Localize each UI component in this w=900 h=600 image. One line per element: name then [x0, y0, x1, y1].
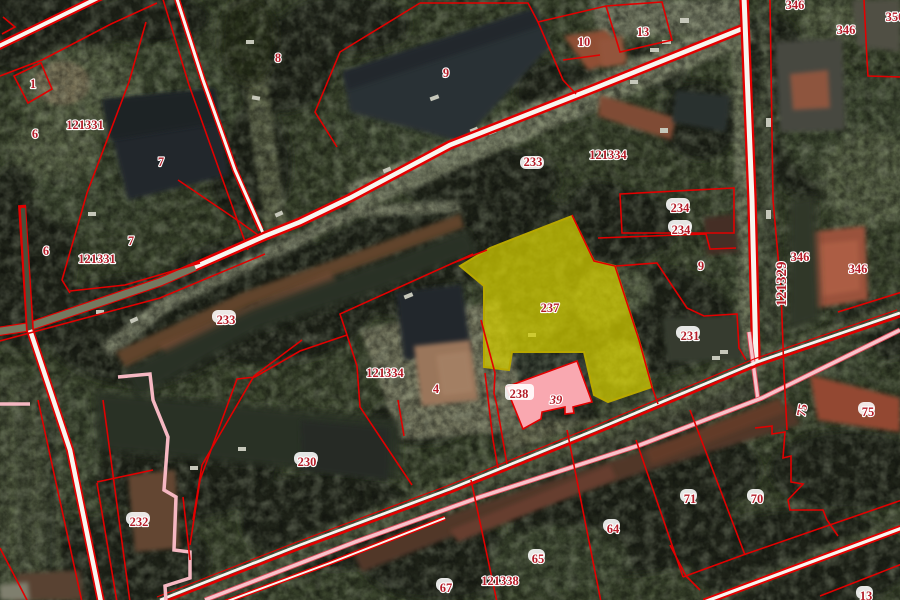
svg-text:13: 13 [637, 25, 650, 39]
svg-text:121331: 121331 [78, 252, 116, 266]
svg-text:350: 350 [886, 10, 900, 24]
svg-text:346: 346 [849, 262, 868, 276]
svg-text:6: 6 [43, 244, 49, 258]
svg-text:346: 346 [791, 250, 810, 264]
svg-text:7: 7 [128, 234, 134, 248]
svg-text:121331: 121331 [66, 118, 104, 132]
svg-text:233: 233 [524, 155, 543, 169]
svg-text:75: 75 [862, 405, 875, 419]
svg-text:9: 9 [698, 259, 704, 273]
svg-text:8: 8 [275, 51, 281, 65]
svg-text:67: 67 [440, 581, 453, 595]
svg-text:7: 7 [158, 155, 164, 169]
svg-text:232: 232 [130, 515, 149, 529]
svg-text:71: 71 [684, 492, 697, 506]
svg-text:4: 4 [433, 382, 440, 396]
svg-text:6: 6 [32, 127, 38, 141]
svg-text:237: 237 [541, 301, 560, 315]
svg-text:346: 346 [786, 0, 805, 12]
svg-text:39: 39 [549, 393, 563, 407]
svg-text:230: 230 [298, 455, 317, 469]
svg-text:121334: 121334 [589, 148, 627, 162]
svg-text:233: 233 [217, 313, 236, 327]
svg-text:9: 9 [443, 66, 449, 80]
svg-text:10: 10 [578, 35, 591, 49]
svg-text:121329: 121329 [774, 262, 790, 307]
svg-text:231: 231 [681, 329, 700, 343]
svg-text:1: 1 [30, 77, 36, 91]
svg-text:121338: 121338 [481, 574, 519, 588]
svg-text:234: 234 [671, 201, 691, 215]
svg-text:65: 65 [532, 552, 545, 566]
svg-text:346: 346 [837, 23, 856, 37]
svg-text:238: 238 [510, 387, 529, 401]
svg-text:234: 234 [672, 223, 692, 237]
svg-text:121334: 121334 [366, 366, 404, 380]
svg-text:70: 70 [751, 492, 764, 506]
svg-text:64: 64 [607, 522, 620, 536]
svg-text:13: 13 [860, 589, 873, 600]
